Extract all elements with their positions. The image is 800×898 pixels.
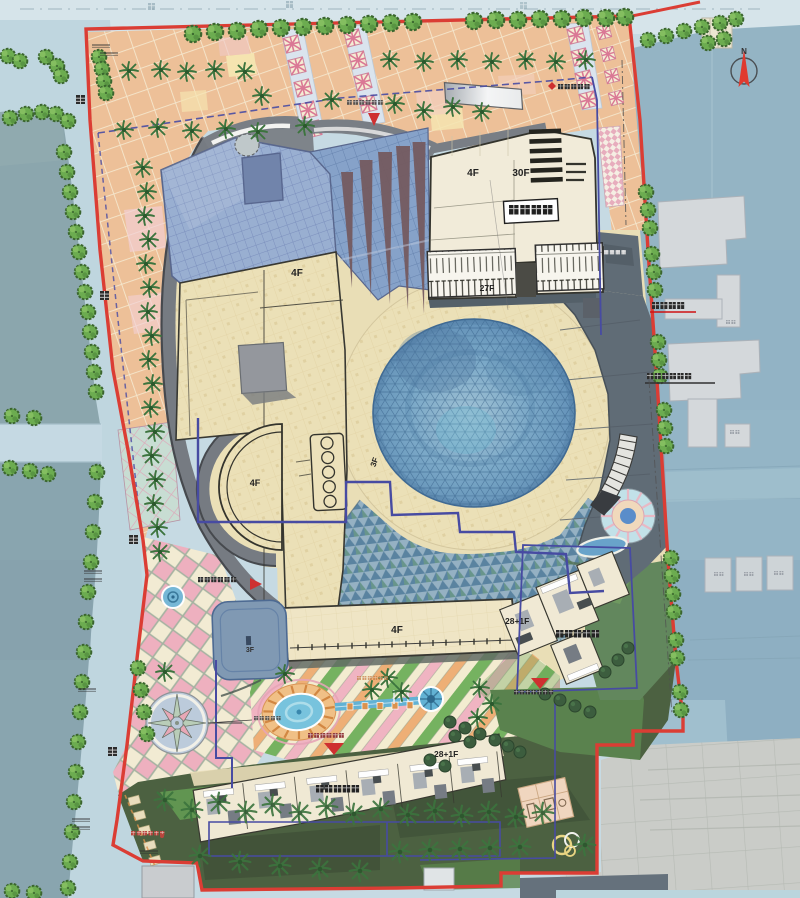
svg-text:N: N xyxy=(741,47,747,56)
